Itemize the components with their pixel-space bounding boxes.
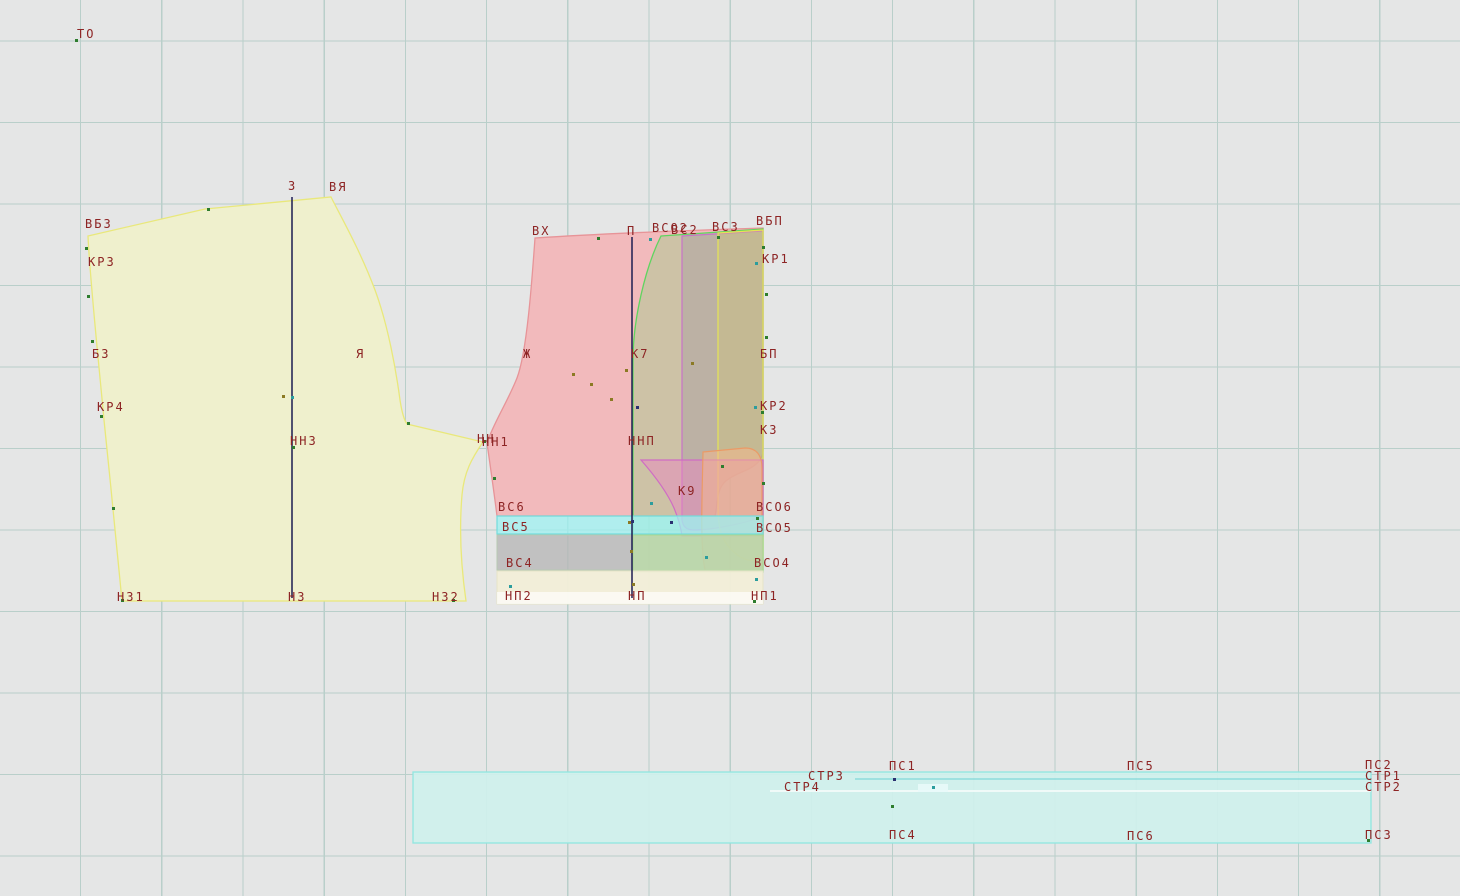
point-label: ПС5 (1127, 760, 1155, 772)
point-label: НП (628, 590, 646, 602)
point-label: К7 (631, 348, 649, 360)
pattern-point[interactable] (636, 406, 639, 409)
point-label: КР1 (762, 253, 790, 265)
point-label: НП1 (751, 590, 779, 602)
pattern-point[interactable] (705, 556, 708, 559)
point-label: НП2 (505, 590, 533, 602)
point-label: ПС1 (889, 760, 917, 772)
point-label: ВС5 (502, 521, 530, 533)
point-label: БП (760, 348, 778, 360)
point-label: К9 (678, 485, 696, 497)
point-label: БЗ (92, 348, 110, 360)
point-label: НН1 (482, 436, 510, 448)
point-label: НЗ (288, 591, 306, 603)
point-label: ВСО4 (754, 557, 791, 569)
point-label: СТР4 (784, 781, 821, 793)
point-label: ВБП (756, 215, 784, 227)
point-label: ННП (628, 435, 656, 447)
pattern-point[interactable] (632, 583, 635, 586)
point-label: ПС3 (1365, 829, 1393, 841)
point-label: ВС4 (506, 557, 534, 569)
pattern-point[interactable] (670, 521, 673, 524)
pattern-point[interactable] (755, 262, 758, 265)
pattern-point[interactable] (493, 477, 496, 480)
pattern-point[interactable] (721, 465, 724, 468)
point-label: К3 (760, 424, 778, 436)
piece-back[interactable] (88, 197, 483, 601)
pattern-point[interactable] (765, 336, 768, 339)
point-label: ПС6 (1127, 830, 1155, 842)
pattern-point[interactable] (649, 238, 652, 241)
point-label: Ж (523, 348, 532, 360)
pattern-pieces-layer (0, 0, 1460, 896)
point-label: ВСО6 (756, 501, 793, 513)
strip-vs6[interactable] (497, 516, 763, 534)
point-label: ВБЗ (85, 218, 113, 230)
point-label: ТО (77, 28, 95, 40)
pattern-point[interactable] (282, 395, 285, 398)
pattern-point[interactable] (691, 362, 694, 365)
pattern-point[interactable] (650, 502, 653, 505)
point-label: ННЗ (290, 435, 318, 447)
pattern-point[interactable] (762, 482, 765, 485)
pattern-point[interactable] (631, 520, 634, 523)
point-label: КР4 (97, 401, 125, 413)
pattern-point[interactable] (87, 295, 90, 298)
point-label: Я (356, 348, 365, 360)
point-label: СТР2 (1365, 781, 1402, 793)
point-label: НЗ1 (117, 591, 145, 603)
point-label: ВХ (532, 225, 550, 237)
pattern-point[interactable] (932, 786, 935, 789)
pattern-point[interactable] (85, 247, 88, 250)
pattern-point[interactable] (630, 550, 633, 553)
pattern-point[interactable] (112, 507, 115, 510)
pattern-point[interactable] (572, 373, 575, 376)
point-label: ВС6 (498, 501, 526, 513)
point-label: КР2 (760, 400, 788, 412)
pattern-point[interactable] (100, 415, 103, 418)
pattern-point[interactable] (610, 398, 613, 401)
pattern-point[interactable] (407, 422, 410, 425)
point-label: ВСО5 (756, 522, 793, 534)
pattern-point[interactable] (625, 369, 628, 372)
pattern-point[interactable] (754, 406, 757, 409)
pattern-point[interactable] (756, 517, 759, 520)
pattern-point[interactable] (509, 585, 512, 588)
pattern-point[interactable] (891, 805, 894, 808)
point-label: ВС2 (671, 224, 699, 236)
pattern-point[interactable] (717, 236, 720, 239)
strip-green-right[interactable] (633, 535, 763, 572)
point-label: ВЯ (329, 181, 347, 193)
pattern-point[interactable] (597, 237, 600, 240)
point-label: КР3 (88, 256, 116, 268)
drawing-canvas[interactable]: ТОВБЗКР3ЗВЯБЗЯКР4ННЗНЗ1НЗНЗ2ВХПВСО2ВС2ВС… (0, 0, 1460, 896)
point-label: ПС4 (889, 829, 917, 841)
pattern-point[interactable] (91, 340, 94, 343)
pattern-point[interactable] (291, 396, 294, 399)
point-label: НЗ2 (432, 591, 460, 603)
point-label: П (627, 225, 636, 237)
pattern-point[interactable] (590, 383, 593, 386)
point-label: З (288, 180, 297, 192)
pattern-point[interactable] (755, 578, 758, 581)
pattern-point[interactable] (207, 208, 210, 211)
pattern-point[interactable] (893, 778, 896, 781)
pattern-point[interactable] (762, 246, 765, 249)
pattern-point[interactable] (765, 293, 768, 296)
point-label: ВС3 (712, 221, 740, 233)
